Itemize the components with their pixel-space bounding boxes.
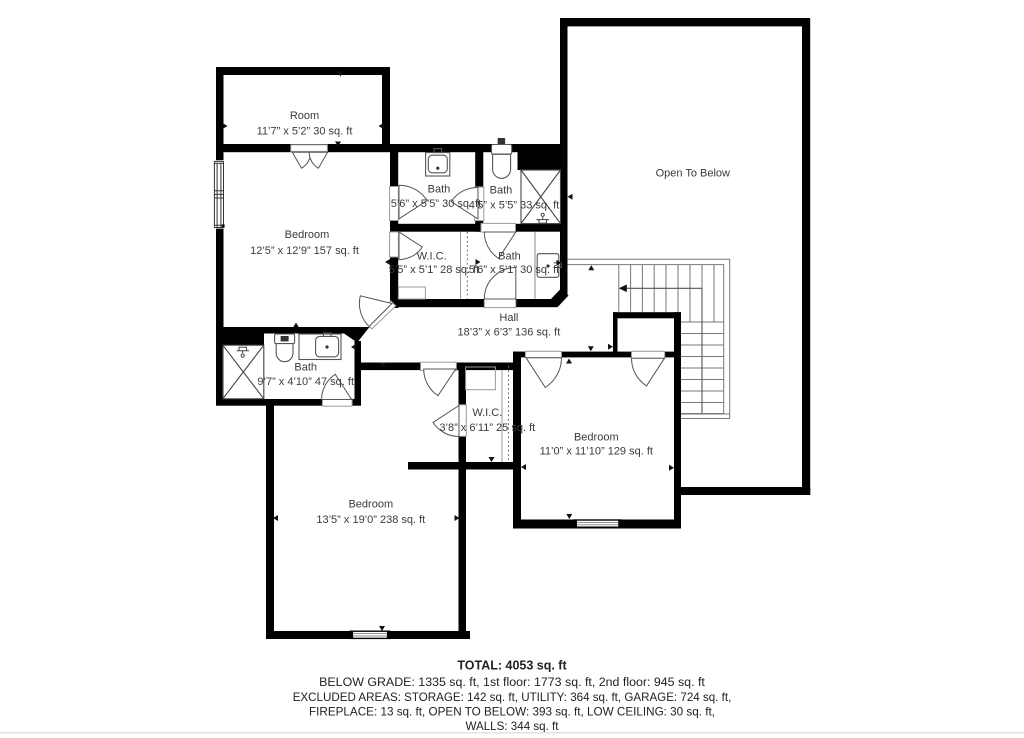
svg-text:Room: Room (290, 110, 319, 122)
svg-text:Bath: Bath (498, 251, 521, 263)
svg-text:18’3” x 6’3” 136 sq. ft: 18’3” x 6’3” 136 sq. ft (458, 327, 561, 339)
svg-text:11’0” x 11’10” 129 sq. ft: 11’0” x 11’10” 129 sq. ft (540, 446, 653, 458)
svg-text:W.I.C.: W.I.C. (417, 251, 447, 263)
svg-text:12’5” x 12’9” 157 sq. ft: 12’5” x 12’9” 157 sq. ft (250, 245, 359, 257)
svg-text:Open To Below: Open To Below (656, 168, 730, 180)
svg-text:Bath: Bath (490, 185, 513, 197)
svg-text:WALLS: 344 sq. ft: WALLS: 344 sq. ft (465, 720, 559, 733)
svg-text:Bedroom: Bedroom (348, 499, 393, 511)
svg-text:5’6” x 5’1” 30 sq. ft: 5’6” x 5’1” 30 sq. ft (469, 264, 560, 276)
svg-text:9’7” x 4’10” 47 sq. ft: 9’7” x 4’10” 47 sq. ft (257, 376, 354, 388)
svg-text:5’5” x 5’1” 28 sq. ft: 5’5” x 5’1” 28 sq. ft (389, 264, 480, 276)
svg-text:EXCLUDED AREAS: STORAGE: 142 s: EXCLUDED AREAS: STORAGE: 142 sq. ft, UTI… (293, 691, 732, 704)
svg-text:FIREPLACE: 13 sq. ft, OPEN TO: FIREPLACE: 13 sq. ft, OPEN TO BELOW: 393… (309, 706, 715, 719)
svg-text:BELOW GRADE: 1335 sq. ft, 1st: BELOW GRADE: 1335 sq. ft, 1st floor: 177… (319, 675, 705, 689)
svg-text:3’8” x 6’11” 25 sq. ft: 3’8” x 6’11” 25 sq. ft (439, 422, 535, 434)
svg-text:11’7” x 5’2” 30 sq. ft: 11’7” x 5’2” 30 sq. ft (257, 126, 353, 138)
svg-text:Hall: Hall (499, 312, 518, 324)
svg-text:Bedroom: Bedroom (574, 431, 619, 443)
svg-text:W.I.C.: W.I.C. (472, 407, 502, 419)
svg-text:Bedroom: Bedroom (285, 229, 330, 241)
svg-text:5’6” x 5’5” 30 sq. ft: 5’6” x 5’5” 30 sq. ft (391, 198, 482, 210)
svg-text:4’5” x 5’5” 33 sq. ft: 4’5” x 5’5” 33 sq. ft (469, 200, 560, 212)
svg-text:Bath: Bath (428, 184, 451, 196)
svg-text:TOTAL: 4053 sq. ft: TOTAL: 4053 sq. ft (457, 659, 567, 673)
svg-text:13’5” x 19’0” 238 sq. ft: 13’5” x 19’0” 238 sq. ft (316, 514, 425, 526)
svg-text:Bath: Bath (294, 362, 317, 374)
